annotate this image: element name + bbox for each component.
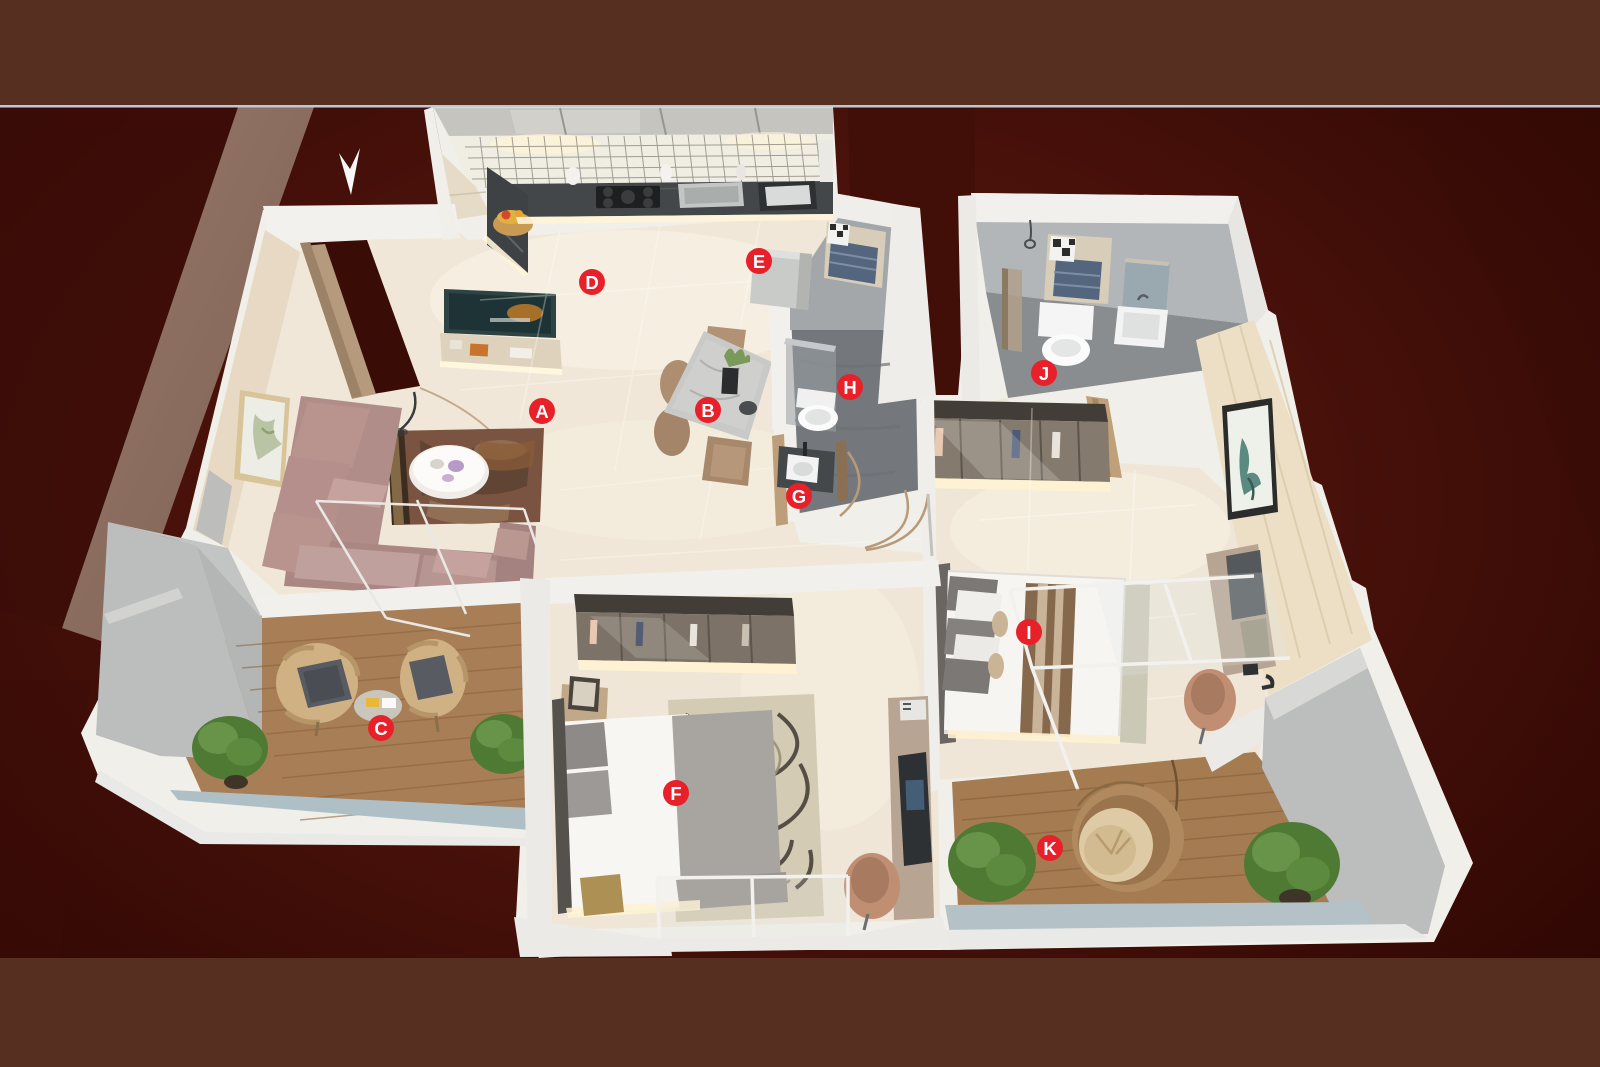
svg-text:D: D bbox=[585, 272, 598, 293]
svg-text:C: C bbox=[374, 718, 387, 739]
svg-text:H: H bbox=[843, 377, 856, 398]
svg-text:K: K bbox=[1043, 838, 1057, 859]
svg-text:B: B bbox=[701, 400, 714, 421]
svg-text:G: G bbox=[792, 486, 806, 507]
svg-text:I: I bbox=[1026, 622, 1031, 643]
svg-text:J: J bbox=[1039, 363, 1049, 384]
svg-text:A: A bbox=[535, 401, 548, 422]
svg-text:E: E bbox=[753, 251, 765, 272]
svg-text:F: F bbox=[670, 783, 681, 804]
